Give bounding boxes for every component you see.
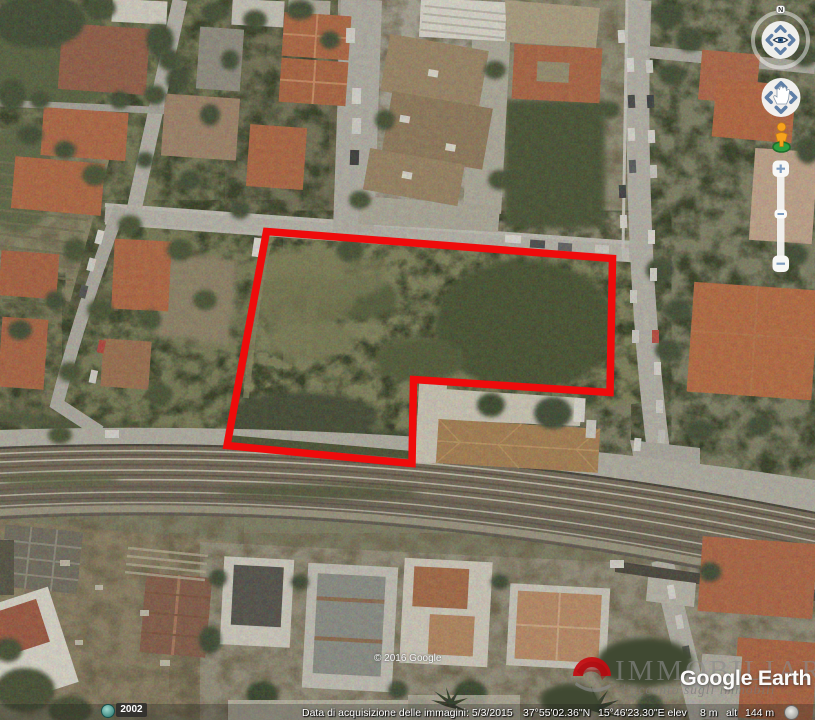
svg-text:N: N <box>778 7 783 14</box>
